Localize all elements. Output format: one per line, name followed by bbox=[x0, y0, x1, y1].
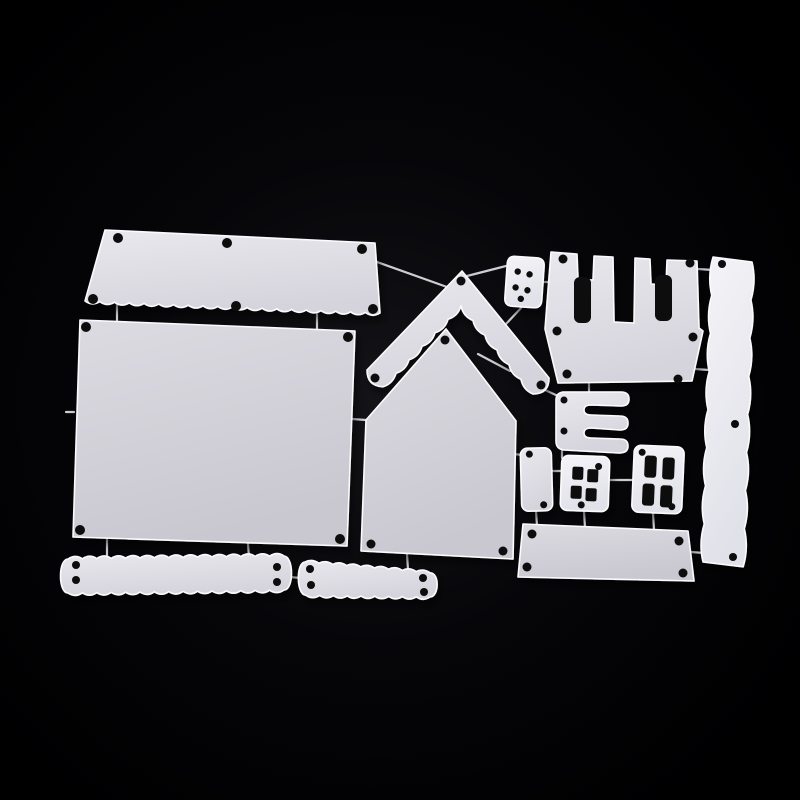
pilot-hole bbox=[731, 420, 739, 428]
small-door-plate bbox=[520, 448, 553, 512]
pilot-hole bbox=[273, 563, 281, 571]
pilot-hole bbox=[689, 333, 698, 342]
window-cutout bbox=[585, 488, 596, 501]
shuttered-window-shape bbox=[632, 445, 685, 514]
window-cutout bbox=[587, 469, 598, 482]
pilot-hole bbox=[499, 547, 508, 556]
dice-button-plate bbox=[504, 256, 544, 308]
pilot-hole bbox=[306, 565, 314, 573]
connector-tab bbox=[536, 511, 537, 526]
dice-button-plate-shape bbox=[504, 256, 544, 308]
pilot-hole bbox=[675, 537, 684, 546]
pilot-hole bbox=[371, 374, 380, 383]
connector-tab bbox=[407, 554, 408, 570]
house-back-wall-panel bbox=[73, 320, 355, 546]
pilot-hole bbox=[729, 553, 737, 561]
scalloped-fence-strip-left bbox=[61, 554, 292, 596]
scalloped-side-strip-shape bbox=[701, 257, 754, 567]
pilot-hole bbox=[457, 277, 466, 286]
pilot-hole bbox=[561, 397, 568, 404]
pilot-hole bbox=[231, 301, 241, 311]
pilot-hole bbox=[72, 561, 80, 569]
pilot-hole bbox=[718, 260, 726, 268]
pilot-hole bbox=[563, 370, 572, 379]
window-cutout bbox=[574, 277, 591, 323]
pilot-hole bbox=[357, 244, 367, 254]
connector-tab bbox=[584, 511, 585, 528]
connector-tab bbox=[653, 513, 654, 530]
pilot-hole bbox=[273, 578, 281, 586]
pilot-hole bbox=[561, 428, 568, 435]
four-pane-window bbox=[560, 455, 610, 512]
pilot-hole bbox=[686, 259, 695, 268]
pilot-hole bbox=[368, 304, 378, 314]
pilot-hole bbox=[72, 576, 80, 584]
connector-tab bbox=[352, 419, 366, 420]
pilot-hole bbox=[420, 588, 428, 596]
scalloped-eave-panel bbox=[85, 230, 380, 315]
pilot-hole bbox=[335, 534, 345, 544]
four-pane-window-shape bbox=[560, 455, 610, 512]
scalloped-fence-strip-left-shape bbox=[61, 554, 292, 596]
window-cutout bbox=[642, 483, 655, 506]
pilot-hole bbox=[419, 574, 427, 582]
pilot-hole bbox=[441, 336, 450, 345]
connector-tab bbox=[695, 369, 709, 370]
window-cutout bbox=[644, 455, 657, 478]
pilot-hole bbox=[75, 525, 85, 535]
window-cutout bbox=[572, 467, 583, 480]
pilot-hole bbox=[528, 530, 537, 539]
window-cutout bbox=[655, 275, 672, 321]
pilot-hole bbox=[537, 381, 546, 390]
pilot-hole bbox=[307, 581, 315, 589]
pilot-hole bbox=[679, 569, 688, 578]
metal-die-set-photo bbox=[0, 0, 800, 800]
pilot-hole bbox=[523, 563, 532, 572]
house-back-wall-panel-shape bbox=[73, 320, 355, 546]
scalloped-side-strip bbox=[701, 257, 754, 567]
window-cutout bbox=[570, 486, 581, 499]
pilot-hole bbox=[553, 327, 562, 336]
pilot-hole bbox=[222, 238, 232, 248]
pilot-hole bbox=[674, 375, 683, 384]
pilot-hole bbox=[343, 332, 353, 342]
pilot-hole bbox=[559, 255, 568, 264]
base-plate-shape bbox=[518, 524, 694, 581]
base-plate bbox=[518, 524, 694, 581]
pilot-hole bbox=[113, 233, 123, 243]
pilot-hole bbox=[81, 322, 91, 332]
pilot-hole bbox=[367, 540, 376, 549]
window-cutout bbox=[662, 457, 675, 480]
small-door-plate-shape bbox=[520, 448, 553, 512]
product-photo-canvas bbox=[0, 0, 800, 800]
shuttered-window bbox=[632, 445, 685, 514]
e-shaped-bracket bbox=[556, 392, 629, 453]
pilot-hole bbox=[88, 294, 98, 304]
